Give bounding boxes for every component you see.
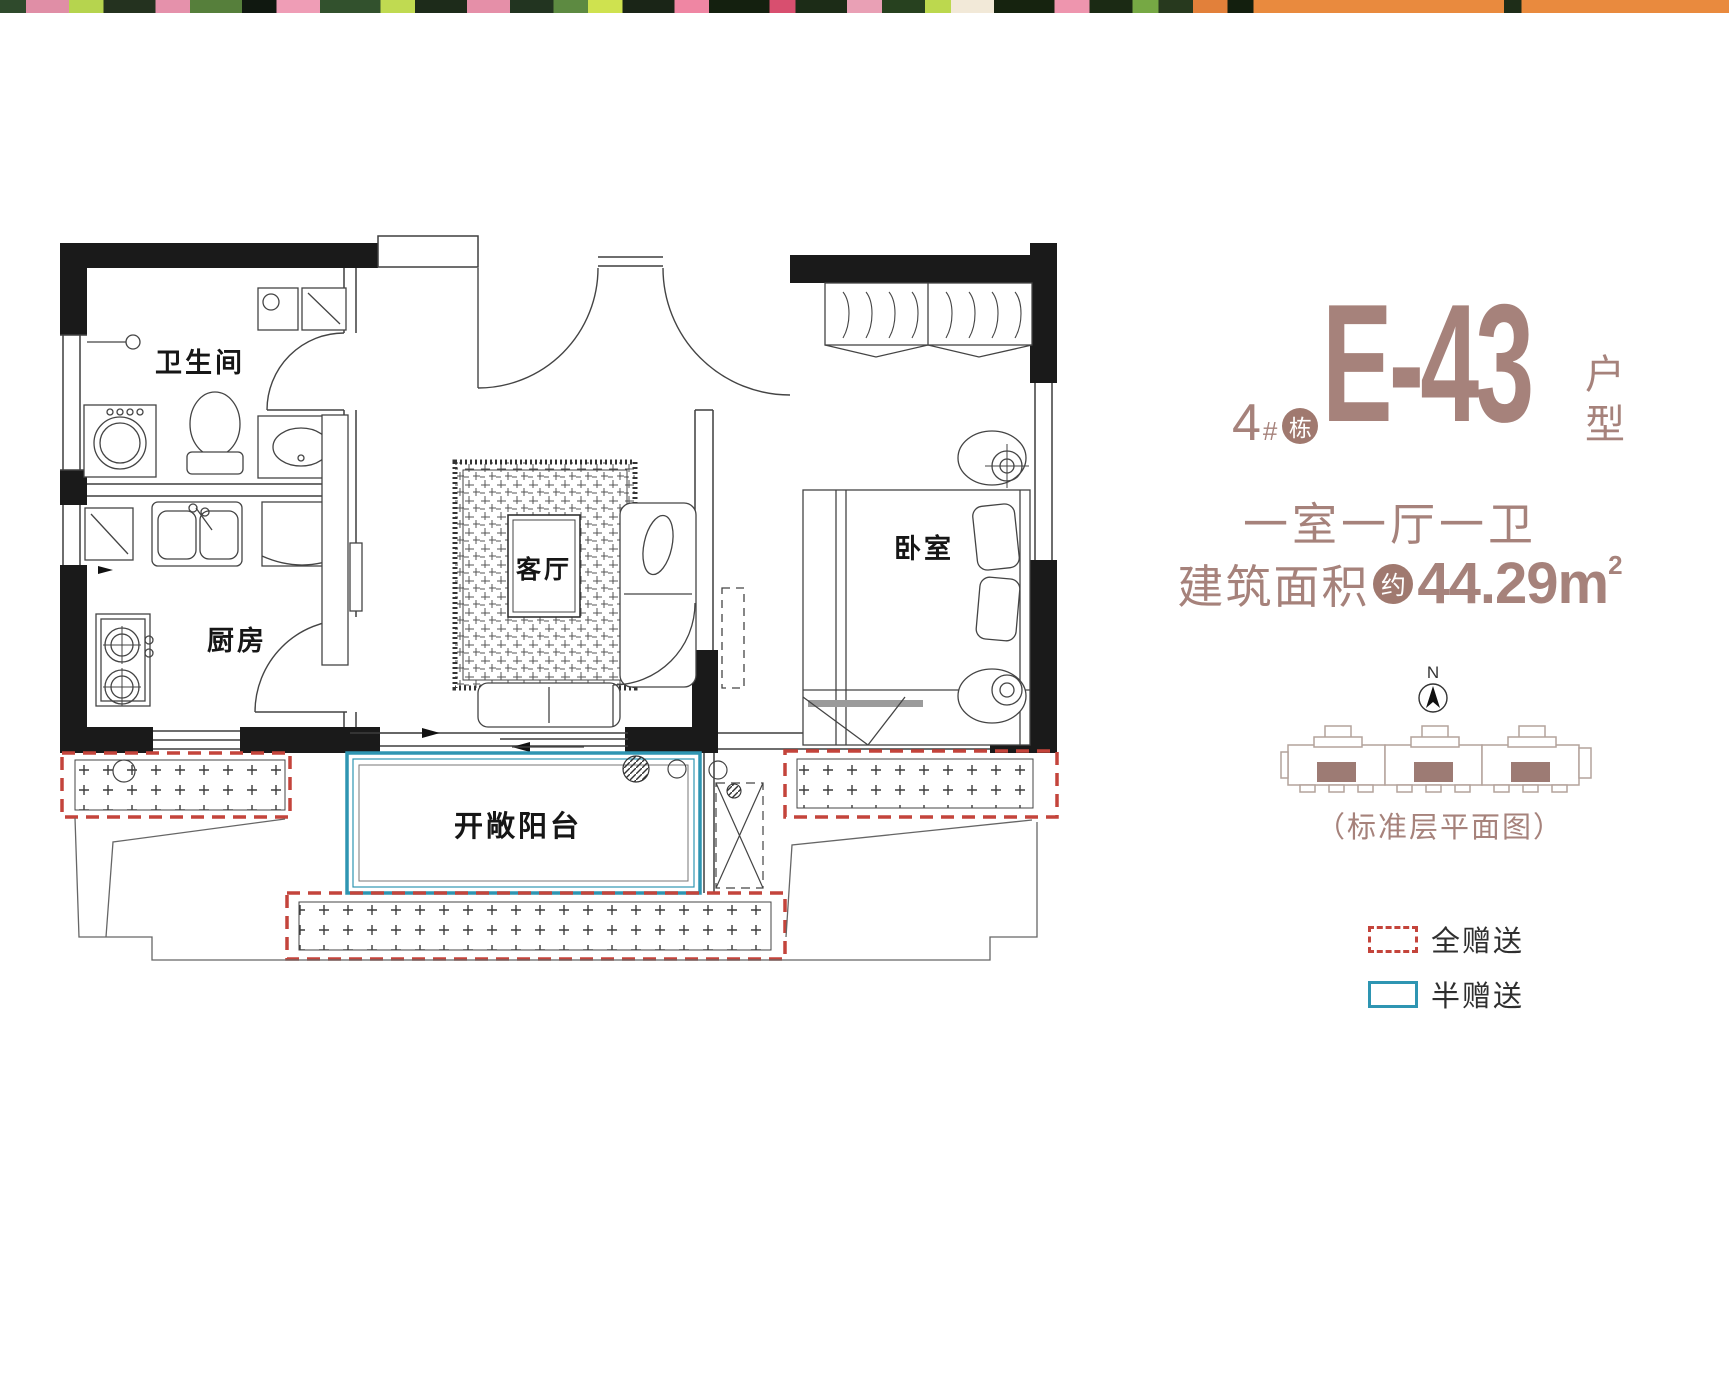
pillow-icon: [975, 576, 1020, 641]
area-label: 建筑面积: [1177, 551, 1369, 617]
bathroom-fixtures: [84, 288, 346, 478]
page: 卫生间 厨房 客厅 卧室 开敞阳台 N: [0, 0, 1729, 1375]
building-badge: 栋: [1282, 408, 1318, 444]
unit-type-suffix: 户 型: [1585, 350, 1625, 450]
floor-drain-icon: [623, 756, 649, 782]
room-label-kitchen: 厨房: [207, 626, 267, 656]
sofa-icon: [620, 503, 696, 687]
room-label-bathroom: 卫生间: [155, 348, 245, 378]
floorplan-drawing: 卫生间 厨房 客厅 卧室 开敞阳台 N: [0, 0, 1729, 1375]
legend-item-full-gift: 全赠送: [1368, 918, 1524, 960]
pillow-icon: [972, 503, 1020, 571]
legend-item-half-gift: 半赠送: [1368, 973, 1524, 1015]
keyplan-diagram: [1281, 726, 1591, 792]
building-number: 4 # 栋: [1232, 398, 1318, 448]
room-label-living: 客厅: [516, 555, 572, 584]
unit-type-suffix-bottom: 型: [1585, 400, 1625, 450]
compass-icon: N: [1419, 663, 1447, 712]
built-area-line: 建筑面积 约 44.29m 2: [1140, 550, 1660, 617]
area-value: 44.29m: [1417, 550, 1608, 617]
legend: 全赠送 半赠送: [1368, 918, 1524, 1028]
ac-platform: [716, 783, 763, 888]
half-gift-swatch: [1368, 981, 1418, 1008]
keyplan-caption: （标准层平面图）: [1190, 804, 1690, 846]
unit-type-suffix-top: 户: [1585, 350, 1625, 400]
tv-cabinet-icon: [322, 415, 348, 665]
toilet-icon: [190, 392, 240, 456]
gift-areas: [62, 751, 1057, 959]
kitchen-fixtures: [85, 502, 342, 706]
building-hash: #: [1263, 416, 1277, 446]
unit-title-block: 4 # 栋 E-43 户 型: [1232, 288, 1692, 468]
half-gift-label: 半赠送: [1431, 973, 1524, 1015]
bedroom-furniture: [722, 283, 1032, 745]
approx-badge: 约: [1373, 564, 1413, 604]
room-label-balcony: 开敞阳台: [454, 809, 582, 843]
washing-machine-icon: [84, 405, 156, 477]
nightstand-icon: [958, 431, 1029, 488]
nightstand-icon: [958, 669, 1026, 723]
room-label-bedroom: 卧室: [894, 533, 954, 564]
compass-north-label: N: [1427, 663, 1439, 682]
room-configuration: 一室一厅一卫: [1140, 488, 1640, 553]
living-room-furniture: [322, 415, 696, 752]
area-superscript: 2: [1608, 550, 1622, 581]
building-number-value: 4: [1232, 398, 1261, 448]
tv-icon: [350, 543, 362, 611]
full-gift-label: 全赠送: [1431, 918, 1524, 960]
full-gift-swatch: [1368, 926, 1418, 953]
